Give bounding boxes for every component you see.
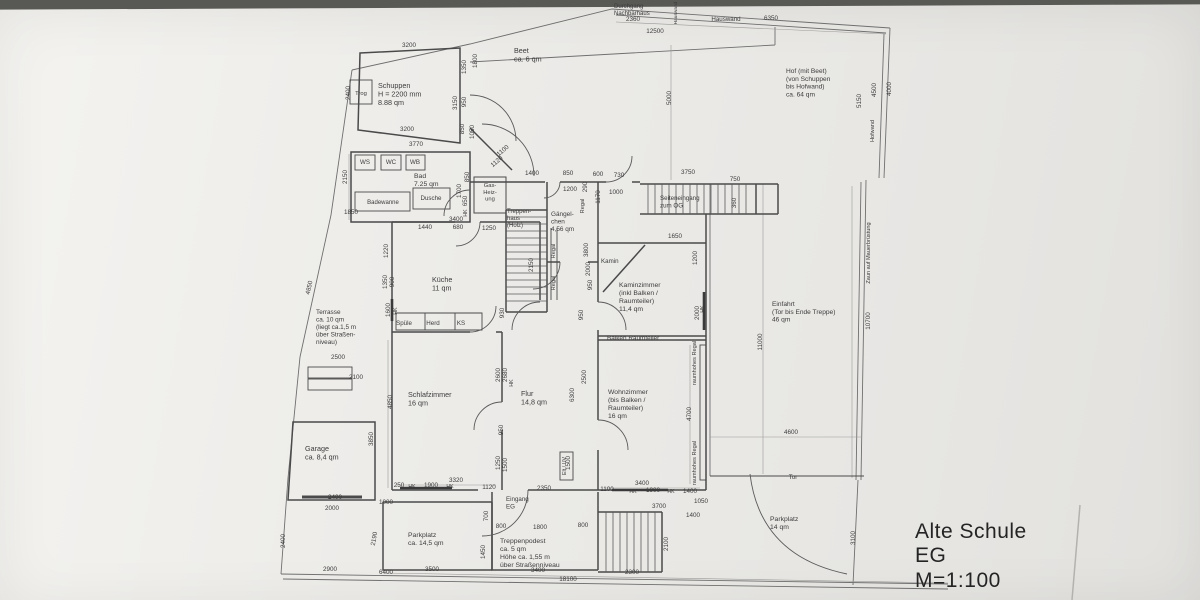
- room-label-schuppen: SchuppenH = 2200 mm8.88 qm: [378, 81, 421, 107]
- annotation-raumhohes-regal-1: raumhohes Regal: [692, 341, 698, 385]
- room-label-bad: Bad7.25 qm: [414, 173, 439, 188]
- dim-2500: 2500: [581, 370, 588, 385]
- dim-1450: 1450: [480, 545, 487, 560]
- annotation-hk-5: HK: [393, 307, 399, 315]
- dim-360: 360: [731, 197, 738, 208]
- floorplan-drawing: SchuppenH = 2200 mm8.88 qmBeetca. 6 qmHo…: [0, 0, 1200, 600]
- dim-290: 290: [582, 181, 589, 192]
- fixture-ws: WS: [360, 159, 370, 166]
- dim-1050: 1050: [469, 125, 476, 140]
- room-label-kamin: Kamin: [601, 258, 619, 265]
- terrasse-step-2: [308, 379, 352, 390]
- dim-2000: 2000: [585, 262, 592, 277]
- room-label-garage: Garageca. 8,4 qm: [305, 444, 339, 461]
- dim-3400: 3400: [449, 216, 464, 223]
- dim-1400: 1400: [683, 488, 698, 495]
- dim-1000: 1000: [609, 189, 624, 196]
- dim-730: 730: [614, 172, 625, 179]
- annotation-hk-6: HK: [463, 209, 469, 217]
- dim-1200: 1200: [692, 251, 699, 266]
- dim-2100: 2100: [349, 374, 364, 381]
- dim-1900: 1900: [424, 482, 439, 489]
- dim-2680: 2680: [502, 368, 509, 383]
- dim-2000: 2000: [694, 306, 701, 321]
- dim-1120: 1120: [490, 154, 505, 168]
- dim-950: 950: [587, 279, 594, 290]
- dim-2500: 2500: [331, 354, 346, 361]
- room-label-wohnzimmer: Wohnzimmer(bis Balken /Raumteiler)16 qm: [608, 389, 649, 420]
- dim-3770: 3770: [409, 141, 424, 148]
- photographed-floor-plan: SchuppenH = 2200 mm8.88 qmBeetca. 6 qmHo…: [0, 0, 1200, 600]
- dim-2400: 2400: [328, 494, 343, 501]
- dim-6350: 6350: [764, 15, 779, 22]
- paper-fold-line: [1072, 505, 1080, 600]
- room-label-hof: Hof (mit Beet)(von Schuppenbis Hofwand)c…: [786, 68, 831, 98]
- dim-4700: 4700: [686, 407, 693, 422]
- annotation-hk-3: HK: [629, 489, 637, 495]
- dim-850: 850: [563, 170, 574, 177]
- room-label-beet: Beetca. 6 qm: [514, 46, 542, 63]
- dim-1650: 1650: [668, 233, 683, 240]
- dim-1250: 1250: [482, 225, 497, 232]
- dim-1500: 1500: [502, 458, 509, 473]
- dim-700: 700: [483, 510, 490, 521]
- fixture-ks: KS: [457, 320, 465, 327]
- dim-10700: 10700: [865, 312, 872, 330]
- room-label-schlafzimmer: Schlafzimmer16 qm: [408, 390, 452, 407]
- room-label-terrasse: Terrasseca. 10 qm(liegt ca.1,5 müber Str…: [316, 309, 356, 346]
- room-label-parkplatz-ost: Parkplatz14 qm: [770, 516, 799, 531]
- dim-12500: 12500: [646, 28, 664, 35]
- dim-1900: 1900: [646, 487, 661, 494]
- dim-1170: 1170: [595, 190, 602, 204]
- dim-2100: 2100: [663, 537, 670, 552]
- dim-4850: 4850: [305, 280, 315, 296]
- dim-1600: 1600: [385, 303, 392, 318]
- dim-1120: 1120: [482, 484, 496, 491]
- treppenhaus-treads: [506, 217, 547, 301]
- dim-650: 650: [462, 195, 469, 206]
- room-label-treppenhaus: Treppen-haus(Holz): [507, 209, 531, 229]
- annotation-hauswand-klein: Hauswand: [673, 1, 679, 24]
- tor-swing-arc: [750, 474, 847, 574]
- dim-5000: 5000: [666, 91, 673, 106]
- dim-800: 800: [496, 523, 507, 530]
- annotation-regal-1: Regal: [580, 199, 586, 214]
- dim-2150: 2150: [528, 258, 535, 273]
- dim-2360: 2360: [626, 16, 641, 23]
- dim-900: 900: [389, 276, 396, 287]
- dim-3400: 3400: [531, 567, 546, 574]
- dim-930: 930: [499, 307, 506, 318]
- dim-3320: 3320: [449, 477, 464, 484]
- wohnzimmer-door-arc: [598, 420, 628, 450]
- dim-850: 850: [464, 171, 471, 182]
- treppenhaus-outline: [506, 182, 547, 312]
- dim-1850: 1850: [344, 209, 359, 216]
- annotation-hk-8: HK: [509, 379, 515, 387]
- dim-1800: 1800: [472, 54, 479, 69]
- room-label-kaminzimmer: Kaminzimmer(inkl Balken /Raumteiler)11,4…: [619, 282, 661, 313]
- dim-1200: 1200: [563, 186, 578, 193]
- dim-750: 750: [730, 176, 741, 183]
- fixture-badewanne: Badewanne: [367, 200, 399, 206]
- dim-3700: 3700: [652, 503, 667, 510]
- dim-6300: 6300: [569, 388, 576, 403]
- annotation-zaun: Zaun auf Mauerbrüstung: [866, 222, 872, 283]
- aussentreppe-outline: [598, 512, 662, 572]
- dim-680: 680: [453, 224, 464, 231]
- dim-3850: 3850: [368, 432, 375, 447]
- dim-1440: 1440: [418, 224, 433, 231]
- dim-2900: 2900: [323, 566, 338, 573]
- title-floor: EG: [915, 544, 1027, 568]
- title-project: Alte Schule: [915, 520, 1027, 544]
- annotation-tor: Tor: [789, 474, 798, 481]
- dim-3400: 3400: [635, 480, 650, 487]
- kueche-east-door-arc: [512, 302, 540, 330]
- fixture-wb: WB: [410, 159, 420, 166]
- kueche-south-door-arc: [470, 306, 496, 332]
- annotation-hofwand: Hofwand: [870, 120, 876, 142]
- dim-1400: 1400: [525, 170, 540, 177]
- dim-4850: 4850: [387, 395, 394, 410]
- dim-3200: 3200: [402, 42, 417, 49]
- dim-600: 600: [593, 171, 604, 178]
- dim-1350: 1350: [461, 60, 468, 75]
- dim-11000: 11000: [757, 333, 764, 351]
- dim-4000: 4000: [886, 82, 893, 97]
- dim-3800: 3800: [583, 243, 590, 258]
- fixture-wc: WC: [386, 159, 397, 166]
- room-label-parkplatz-sued: Parkplatzca. 14,5 qm: [408, 532, 444, 547]
- annotation-regal-3: Regal: [551, 276, 557, 291]
- dim-1400: 1400: [686, 512, 701, 519]
- fixture-gas-heizung: Gas-Heiz-ung: [483, 183, 497, 203]
- dim-18100: 18100: [559, 576, 577, 583]
- dim-1250: 1250: [495, 456, 502, 471]
- dim-1000: 1000: [379, 499, 394, 506]
- room-label-flur: Flur14,8 qm: [521, 389, 547, 406]
- dim-1220: 1220: [383, 244, 390, 259]
- dim-4600: 4600: [784, 429, 799, 436]
- title-block: Alte Schule EG M=1:100: [915, 520, 1027, 593]
- annotation-regal-2: Regal: [551, 244, 557, 259]
- room-label-gaengelchen: Gängel-chen4,56 qm: [551, 211, 574, 233]
- dim-3750: 3750: [681, 169, 696, 176]
- dim-800: 800: [578, 522, 589, 529]
- annotation-hk-2: HK: [446, 484, 454, 490]
- dim-2400: 2400: [280, 534, 287, 549]
- dim-2000: 2000: [325, 505, 340, 512]
- dim-1800: 1800: [533, 524, 548, 531]
- room-label-kueche: Küche11 qm: [432, 275, 452, 292]
- fixture-herd: Herd: [426, 320, 440, 327]
- raumhohes-regal-strip: [700, 345, 706, 480]
- fixture-spuele: Spüle: [396, 320, 412, 327]
- room-label-treppenpodest: Treppenpodestca. 5 qmHöhe ca. 1,55 müber…: [500, 538, 560, 569]
- fixture-trog: Trog: [355, 91, 367, 97]
- parkplatz-sued-outline: [383, 502, 492, 570]
- annotation-hauswand-top: Hauswand: [711, 16, 741, 23]
- annotation-hk-4: HK: [667, 489, 675, 495]
- title-scale: M=1:100: [915, 569, 1027, 593]
- dim-6400: 6400: [379, 569, 394, 576]
- dim-1050: 1050: [694, 498, 709, 505]
- dim-1350: 1350: [382, 275, 389, 290]
- dim-4500: 4500: [871, 83, 878, 98]
- dim-2400: 2400: [345, 86, 352, 101]
- dim-3150: 3150: [452, 96, 459, 111]
- dim-950: 950: [578, 309, 585, 320]
- dim-3200: 3200: [400, 126, 415, 133]
- dim-2300: 2300: [625, 569, 640, 576]
- dim-850: 850: [459, 123, 466, 134]
- fixture-dusche: Dusche: [421, 195, 443, 202]
- dim-2600: 2600: [495, 368, 502, 383]
- dim-950: 950: [498, 424, 505, 435]
- annotation-balken-raumteiler: Balken Raumteiler: [607, 335, 660, 342]
- dim-250: 250: [394, 482, 405, 489]
- annotation-raumhohes-regal-2: raumhohes Regal: [692, 441, 698, 485]
- dim-3500: 3500: [425, 566, 440, 573]
- dim-1100: 1100: [600, 486, 614, 493]
- room-label-seiteneingang: Seiteneingangzum OG: [660, 195, 700, 209]
- room-label-einfahrt: Einfahrt(Tor bis Ende Treppe)46 qm: [772, 301, 835, 324]
- dim-950: 950: [461, 96, 468, 107]
- annotation-hk-1: HK: [408, 484, 416, 490]
- dim-2150: 2150: [342, 170, 349, 185]
- dim-5150: 5150: [856, 94, 863, 109]
- dim-2350: 2350: [537, 485, 552, 492]
- dim-3100: 3100: [850, 531, 857, 546]
- aussentreppe-treads: [606, 512, 655, 572]
- dim-2190: 2190: [370, 531, 379, 547]
- terrasse-step-1: [308, 367, 352, 378]
- dim-1500: 1500: [565, 456, 572, 471]
